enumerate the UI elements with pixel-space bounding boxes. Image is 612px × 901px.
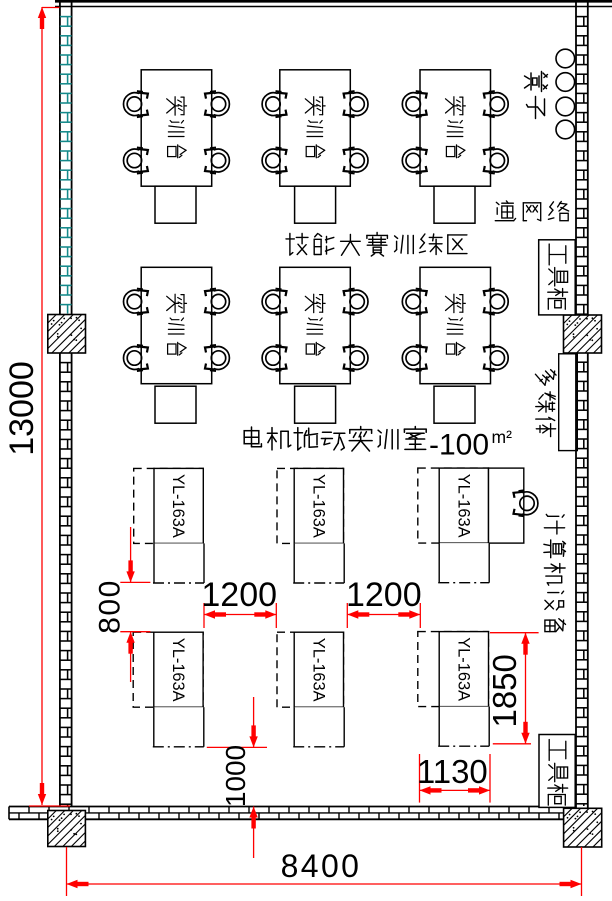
- svg-text:-100: -100: [429, 429, 489, 462]
- svg-text:YL-163A: YL-163A: [169, 638, 187, 702]
- svg-text:1000: 1000: [220, 745, 251, 807]
- svg-text:YL-163A: YL-163A: [454, 474, 472, 538]
- svg-text:YL-163A: YL-163A: [454, 637, 472, 701]
- svg-text:YL-163A: YL-163A: [309, 474, 327, 538]
- svg-text:YL-163A: YL-163A: [309, 638, 327, 702]
- svg-text:800: 800: [94, 579, 127, 634]
- svg-text:8400: 8400: [281, 848, 362, 884]
- svg-text:YL-163A: YL-163A: [169, 474, 187, 538]
- svg-text:1130: 1130: [417, 753, 488, 790]
- svg-text:13000: 13000: [3, 361, 41, 456]
- svg-text:m²: m²: [492, 427, 513, 447]
- svg-text:1200: 1200: [201, 576, 277, 614]
- svg-text:1200: 1200: [346, 576, 422, 614]
- svg-text:1850: 1850: [486, 654, 523, 727]
